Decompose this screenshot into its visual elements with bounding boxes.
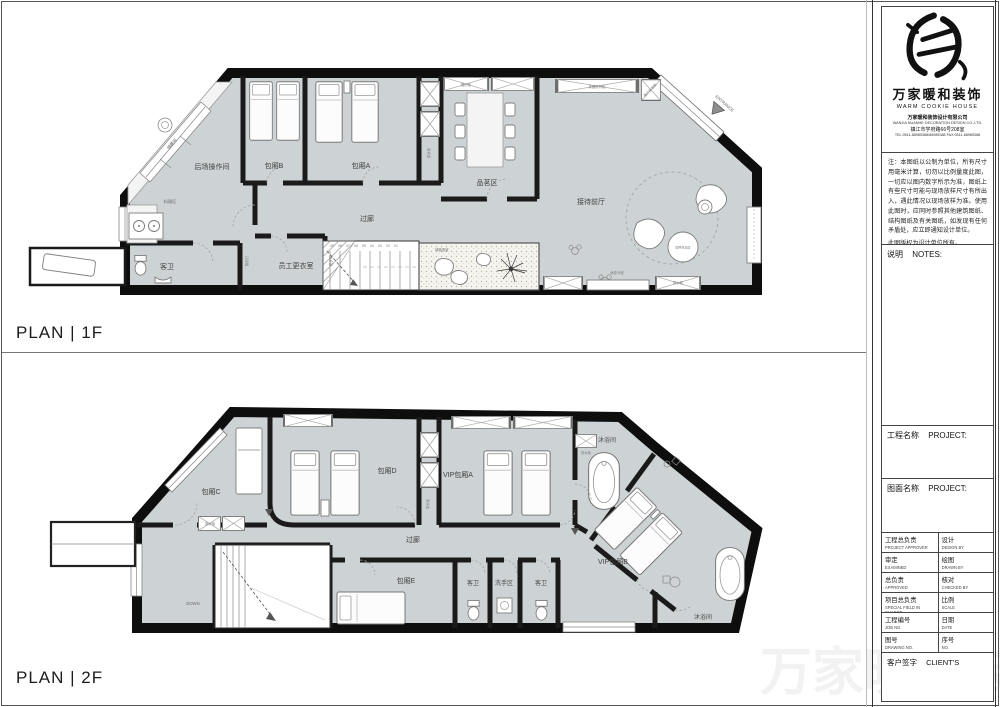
client-label-cn: 客户签字: [887, 658, 917, 667]
field-label: 总负责: [885, 575, 935, 584]
field-row: 工程编号JOB NO. 日期DATE: [882, 613, 993, 633]
field-label: 绘图: [942, 555, 990, 564]
field-sublabel: DRAWING NO.: [885, 645, 935, 650]
room-label-staff: 员工更衣室: [279, 261, 314, 270]
project-name-section: 工程名称 PROJECT:: [882, 426, 993, 479]
field-row: 审定EXAMINED 绘图DRAWN BY: [882, 553, 993, 573]
2f-left-window: [51, 522, 142, 596]
project-label-cn: 工程名称: [887, 431, 919, 440]
drawing-name-section: 图面名称 PROJECT:: [882, 479, 993, 533]
field-label: 设计: [942, 535, 990, 544]
drawing-label-en: PROJECT:: [928, 484, 967, 493]
notes-label-cn: 说明: [887, 250, 903, 259]
toilet-icon: [468, 600, 479, 620]
locker-label: 更衣柜: [328, 255, 333, 266]
room-label-showerBottom: 沐浴间: [694, 613, 712, 621]
stair-number: 03: [378, 244, 382, 248]
room-label-tea: 品茗区: [477, 178, 498, 187]
plan-divider-line: [2, 352, 866, 353]
drawing-label-cn: 图面名称: [887, 484, 919, 493]
field-sublabel: SPECIAL FIELD IN CHARGE: [885, 605, 935, 612]
plan-1f-caption: PLAN | 1F: [16, 323, 103, 343]
1f-stairs: [323, 241, 419, 290]
room-label-toilet: 客卫: [160, 262, 174, 271]
disclaimer-text: 注：本图纸以公制为单位，所有尺寸用毫米计算，切勿以比例量度此图，一切应以图内数字…: [882, 153, 993, 236]
field-label: 审定: [885, 555, 935, 564]
brand-logo: [882, 10, 993, 84]
field-label: 工程编号: [885, 615, 935, 624]
toilet-icon: [536, 600, 547, 620]
down-label: DOWN: [186, 601, 199, 606]
2f-stairs: [215, 545, 330, 628]
field-row: 图号DRAWING NO. 序号NO.: [882, 633, 993, 653]
tea-cabinet-label: 茶水柜: [673, 280, 684, 285]
room-label-kitchen: 后场操作间: [195, 162, 230, 171]
tea-cabinet-label: 茶水柜: [581, 450, 592, 455]
room-label-vipA: VIP包厢A: [443, 470, 473, 479]
washbasin-icon: [497, 598, 512, 613]
room-label-toilet2: 客卫: [535, 579, 547, 587]
sheet-right-line: [995, 0, 996, 707]
bathtub-icon: [589, 453, 620, 510]
field-label: 比例: [942, 595, 990, 604]
stair-number: 02: [386, 244, 390, 248]
disclaimer-section: 注：本图纸以公制为单位，所有尺寸用毫米计算，切勿以比例量度此图，一切应以图内数字…: [882, 153, 993, 245]
copyright-text: 此图版权为设计单位所有。: [882, 236, 993, 245]
stair-number: 01: [394, 244, 398, 248]
1f-side-entry-door: [30, 248, 125, 285]
field-sublabel: DESIGN BY: [942, 545, 990, 550]
room-label-corridor: 过廊: [360, 214, 374, 223]
stair-number: 06: [354, 244, 358, 248]
2f-bottom-window: [563, 622, 635, 632]
field-sublabel: EXAMINED: [885, 565, 935, 570]
2f-roomC-bench: [236, 428, 262, 494]
field-label: 核对: [942, 575, 990, 584]
room-label-reception: 接待前厅: [577, 197, 605, 206]
room-label-showerTop: 沐浴间: [598, 436, 616, 444]
room-label-roomA: 包厢A: [352, 161, 371, 170]
project-label-en: PROJECT:: [928, 431, 967, 440]
round-stool-label: 圆凳休息区: [675, 245, 690, 250]
field-sublabel: PROJECT APPROVER: [885, 545, 935, 550]
field-label: 项目总负责: [885, 595, 935, 604]
field-row: 工程总负责PROJECT APPROVER 设计DESIGN BY: [882, 533, 993, 553]
titleblock-separator-inner: [872, 0, 873, 707]
stair-number: 07: [346, 244, 350, 248]
garden-label: 绿植造景: [435, 247, 449, 252]
tea-cabinet-label: 茶水柜: [425, 498, 430, 509]
field-row: 项目总负责SPECIAL FIELD IN CHARGE 比例SCALE: [882, 593, 993, 613]
field-sublabel: DRAWN BY: [942, 565, 990, 570]
room-label-cooking: 料理区: [164, 198, 177, 205]
toilet-icon: [135, 255, 146, 275]
brand-name-en: WARM COOKIE HOUSE: [882, 104, 993, 110]
1f-entry-console: [747, 207, 761, 263]
display-cabinet-label: 展示柜: [461, 82, 472, 87]
company-name-en: WANJIA NUANHE DECORATION DESIGN CO.,LTD.: [882, 121, 993, 125]
room-label-roomD: 包厢D: [377, 466, 396, 475]
room-label-toilet1: 客卫: [467, 579, 479, 587]
field-sublabel: JOB NO.: [885, 625, 935, 630]
field-row: 总负责APPROVED 核对CHECKED BY: [882, 573, 993, 593]
titleblock-separator-outer: [866, 0, 867, 707]
company-name-cn: 万家暖和装饰设计有限公司: [882, 114, 993, 121]
hidden-door-label: 隐形门: [244, 255, 249, 266]
brand-section: 万家暖和装饰 WARM COOKIE HOUSE 万家暖和装饰设计有限公司 WA…: [882, 7, 993, 153]
field-label: 图号: [885, 635, 935, 644]
stair-number: 04: [370, 244, 374, 248]
floorplan-2f: 茶水柜 茶水柜 茶水柜: [15, 392, 860, 652]
title-block: 万家暖和装饰 WARM COOKIE HOUSE 万家暖和装饰设计有限公司 WA…: [881, 6, 994, 702]
room-label-corridor: 过廊: [406, 535, 420, 544]
field-label: 日期: [942, 615, 990, 624]
2f-roomE-bed: [337, 592, 405, 624]
field-sublabel: NO.: [942, 645, 990, 650]
company-phone: TEL:0511-88985388/88985388 FAX:0511-8898…: [882, 133, 993, 137]
notes-label-en: NOTES:: [912, 250, 942, 259]
notes-section: 说明 NOTES:: [882, 245, 993, 426]
field-sublabel: CHECKED BY: [942, 585, 990, 590]
room-label-vipB: VIP包厢B: [598, 557, 628, 566]
signoff-table: 工程总负责PROJECT APPROVER 设计DESIGN BY 审定EXAM…: [882, 533, 993, 653]
stair-number: 05: [362, 244, 366, 248]
field-sublabel: DATE: [942, 625, 990, 630]
drawing-sheet: { "sheet": { "plan1_caption": "PLAN | 1F…: [0, 0, 1000, 707]
field-label: 工程总负责: [885, 535, 935, 544]
brand-name-cn: 万家暖和装饰: [882, 84, 993, 103]
stair-number: 09: [330, 244, 334, 248]
stair-number: 08: [338, 244, 342, 248]
1f-tea-table: [455, 93, 515, 167]
room-label-wash: 洗手区: [495, 579, 513, 587]
bench-label: 休息卡座: [610, 270, 624, 275]
tea-cabinet-label: 茶水柜: [426, 147, 431, 158]
client-signature-section: 客户签字 CLIENT'S: [882, 653, 993, 699]
room-label-roomE: 包厢E: [397, 576, 416, 585]
1f-stair-numbers: 09 08 07 06 05 04 03 02 01: [330, 244, 398, 248]
shelf-cabinet-label: 茶器陈列柜: [589, 84, 607, 89]
bathtub-icon: [716, 548, 745, 601]
company-address: 镇江市学府路66号208室: [882, 126, 993, 133]
room-label-roomB: 包厢B: [265, 161, 284, 170]
field-sublabel: SCALE: [942, 605, 990, 610]
plan-2f-caption: PLAN | 2F: [16, 668, 103, 688]
1f-stove-icon: [129, 213, 163, 239]
tea-cabinet-label: 茶水柜: [205, 521, 216, 526]
field-sublabel: APPROVED: [885, 585, 935, 590]
room-label-roomC: 包厢C: [201, 487, 220, 496]
field-label: 序号: [942, 635, 990, 644]
floorplan-1f: 储藏间 茶水柜 展示柜 茶器陈列柜 客户存茶柜: [15, 55, 860, 305]
client-label-en: CLIENT'S: [926, 658, 959, 667]
